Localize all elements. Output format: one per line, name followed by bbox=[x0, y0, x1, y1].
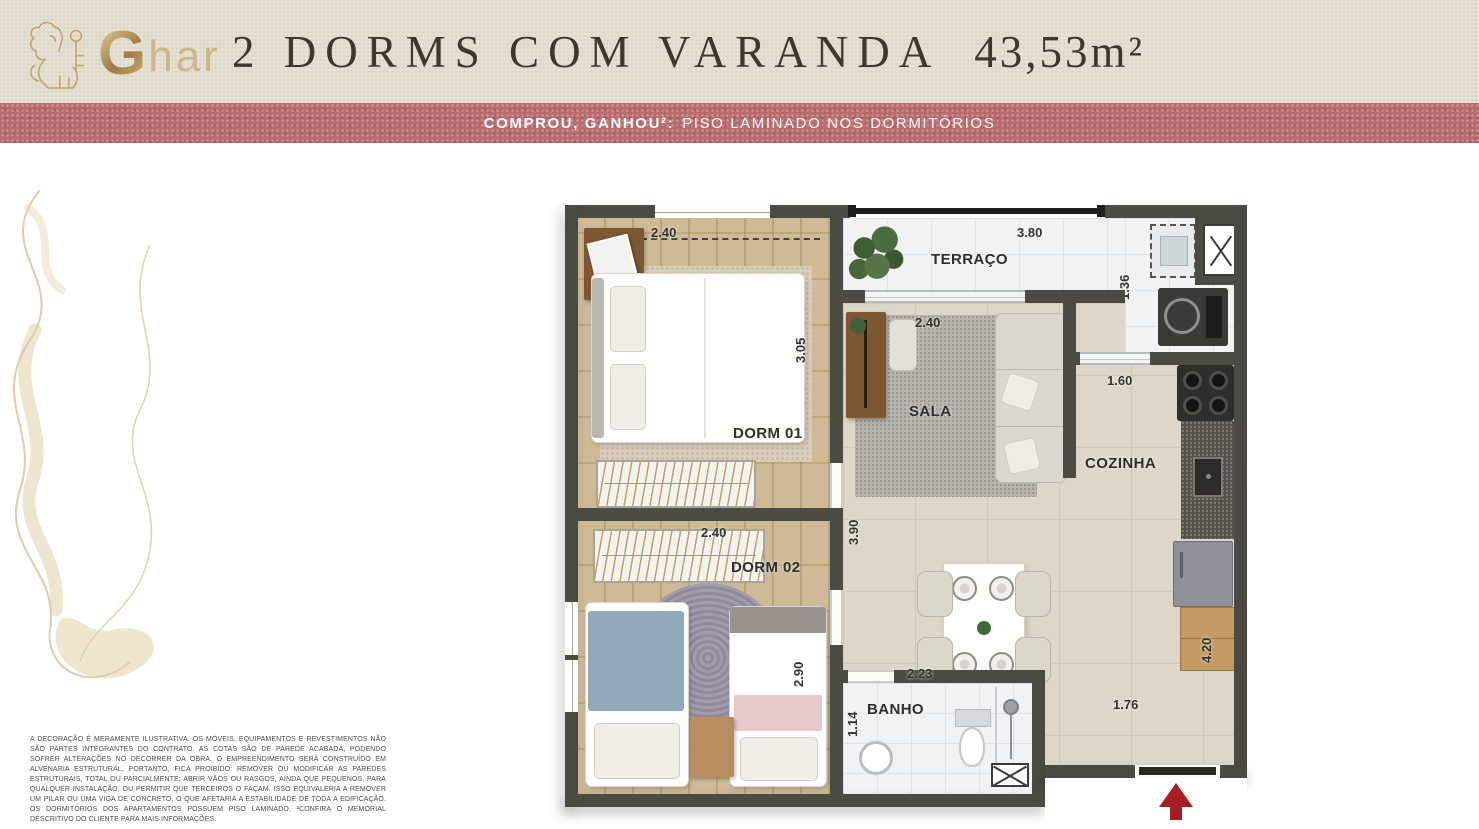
dorm01-window bbox=[655, 205, 770, 218]
brand-wordmark: har bbox=[148, 32, 221, 82]
tv-console bbox=[846, 312, 886, 418]
wall-sala-kitchen bbox=[1063, 290, 1076, 478]
toilet-bowl bbox=[959, 727, 985, 767]
room-label-dorm01: DORM 01 bbox=[733, 425, 802, 442]
toilet-tank bbox=[955, 709, 991, 727]
dorm01-wardrobe bbox=[596, 460, 756, 508]
lion-key-icon bbox=[22, 12, 94, 97]
room-label-dorm02: DORM 02 bbox=[731, 559, 800, 576]
bed-headboard bbox=[592, 278, 604, 438]
entry-door-leaf bbox=[1139, 767, 1216, 775]
dim-cozinha-depth: 4.20 bbox=[1199, 638, 1214, 663]
brand-logo: G har bbox=[22, 12, 221, 96]
banho-door bbox=[848, 670, 894, 683]
bed-pillow bbox=[610, 364, 646, 430]
stove-burner bbox=[1209, 396, 1228, 415]
shower-drain-box bbox=[991, 763, 1029, 787]
dorm02-window bbox=[565, 660, 578, 712]
dining-chair bbox=[1015, 571, 1051, 617]
stove-burner bbox=[1183, 371, 1202, 390]
wall-dorm01-dorm02 bbox=[578, 508, 830, 521]
dim-dorm01-width: 2.40 bbox=[651, 225, 676, 240]
tank-panel bbox=[1206, 296, 1222, 338]
table-centerpiece-plant bbox=[977, 621, 991, 635]
dim-living-depth: 3.90 bbox=[846, 520, 861, 545]
duvet-seam bbox=[704, 278, 706, 438]
fridge bbox=[1173, 541, 1233, 607]
dim-cozinha-pass: 1.60 bbox=[1107, 373, 1132, 388]
bed-headboard bbox=[730, 607, 826, 633]
shower-stem bbox=[1010, 715, 1012, 759]
wall-right bbox=[1234, 205, 1247, 778]
page-title-text: 2 DORMS COM VARANDA bbox=[232, 26, 940, 78]
dorm01-double-bed bbox=[592, 274, 804, 442]
pink-blanket bbox=[734, 695, 822, 731]
dim-dorm02-depth: 2.90 bbox=[791, 662, 806, 687]
bed-pillow bbox=[740, 737, 818, 781]
page-title: 2 DORMS COM VARANDA 43,53m² bbox=[232, 0, 1282, 103]
page: G har 2 DORMS COM VARANDA 43,53m² COMPRO… bbox=[0, 0, 1479, 829]
washing-machine bbox=[1150, 224, 1196, 278]
dorm02-single-bed-blue bbox=[586, 603, 688, 786]
laundry-tank-sink bbox=[1158, 288, 1228, 346]
sofa-seam bbox=[996, 426, 1066, 427]
floor-plan: 2.40 3.05 DORM 01 2.40 DORM 02 2.90 TERR… bbox=[565, 205, 1247, 823]
terrace-glass-door bbox=[865, 290, 1025, 303]
room-label-sala: SALA bbox=[909, 403, 951, 420]
fridge-handle bbox=[1180, 552, 1183, 578]
console-plant bbox=[850, 318, 866, 334]
kitchen-counter bbox=[1181, 421, 1234, 539]
wall-left bbox=[565, 205, 578, 807]
terrace-plant bbox=[845, 220, 909, 290]
header-band: G har 2 DORMS COM VARANDA 43,53m² bbox=[0, 0, 1479, 103]
room-label-terraco: TERRAÇO bbox=[931, 251, 1008, 268]
legal-disclaimer: A DECORAÇÃO É MERAMENTE ILUSTRATIVA. OS … bbox=[30, 735, 386, 824]
page-title-area: 43,53m² bbox=[974, 26, 1145, 78]
entrance-arrow-stem bbox=[1170, 806, 1182, 820]
wall-bottom bbox=[565, 794, 1045, 807]
railing-post bbox=[1097, 205, 1105, 217]
promo-banner: COMPROU, GANHOU²: PISO LAMINADO NOS DORM… bbox=[0, 103, 1479, 143]
dorm02-single-bed-pink bbox=[730, 607, 826, 786]
stove-burner bbox=[1183, 396, 1202, 415]
banho-right-wall bbox=[1032, 670, 1045, 807]
brand-letter-g: G bbox=[98, 23, 146, 85]
banho-floor: BANHO bbox=[843, 683, 1032, 794]
tank-basin bbox=[1164, 298, 1200, 334]
blue-blanket bbox=[588, 611, 684, 711]
room-label-cozinha: COZINHA bbox=[1085, 455, 1156, 472]
dining-chair bbox=[917, 571, 953, 617]
dim-terraco-width: 3.80 bbox=[1017, 225, 1042, 240]
room-label-banho: BANHO bbox=[867, 701, 924, 718]
kitchen-sink bbox=[1193, 457, 1223, 497]
pouf bbox=[889, 319, 917, 371]
dim-dorm02-width: 2.40 bbox=[701, 525, 726, 540]
sofa-seam bbox=[996, 369, 1066, 370]
tv-line bbox=[864, 320, 867, 408]
sofa bbox=[995, 313, 1067, 483]
bed-pillow bbox=[594, 723, 680, 779]
terrace-railing bbox=[850, 208, 1105, 214]
dim-banho-width: 2.23 bbox=[907, 666, 932, 681]
washer-lid bbox=[1160, 236, 1188, 266]
gold-marble-decoration bbox=[0, 190, 190, 705]
dim-banho-depth: 1.14 bbox=[845, 712, 860, 737]
stove-burner bbox=[1209, 371, 1228, 390]
washbasin bbox=[859, 741, 893, 775]
dim-entry-width: 1.76 bbox=[1113, 697, 1138, 712]
stove bbox=[1177, 365, 1234, 421]
promo-text: PISO LAMINADO NOS DORMITÓRIOS bbox=[682, 115, 995, 132]
place-setting bbox=[952, 576, 977, 601]
sink-drain bbox=[1206, 474, 1211, 479]
wall-top-right bbox=[1105, 205, 1247, 218]
sofa-cushion bbox=[1000, 372, 1040, 412]
place-setting bbox=[989, 576, 1014, 601]
dorm02-side-table bbox=[690, 717, 734, 777]
sofa-cushion bbox=[1003, 437, 1041, 475]
kitchen-pass-window bbox=[1080, 352, 1150, 365]
dorm01-door bbox=[830, 463, 843, 508]
dorm02-window bbox=[565, 602, 578, 655]
dim-dorm01-depth: 3.05 bbox=[793, 338, 808, 363]
dorm02-door bbox=[830, 590, 843, 645]
shower-head bbox=[1003, 699, 1019, 715]
bed-pillow bbox=[610, 286, 646, 352]
entrance-arrow-icon bbox=[1159, 783, 1193, 807]
dim-sala-width: 2.40 bbox=[915, 315, 940, 330]
promo-highlight: COMPROU, GANHOU²: bbox=[484, 115, 675, 132]
entry-exterior-mask bbox=[1045, 778, 1247, 823]
